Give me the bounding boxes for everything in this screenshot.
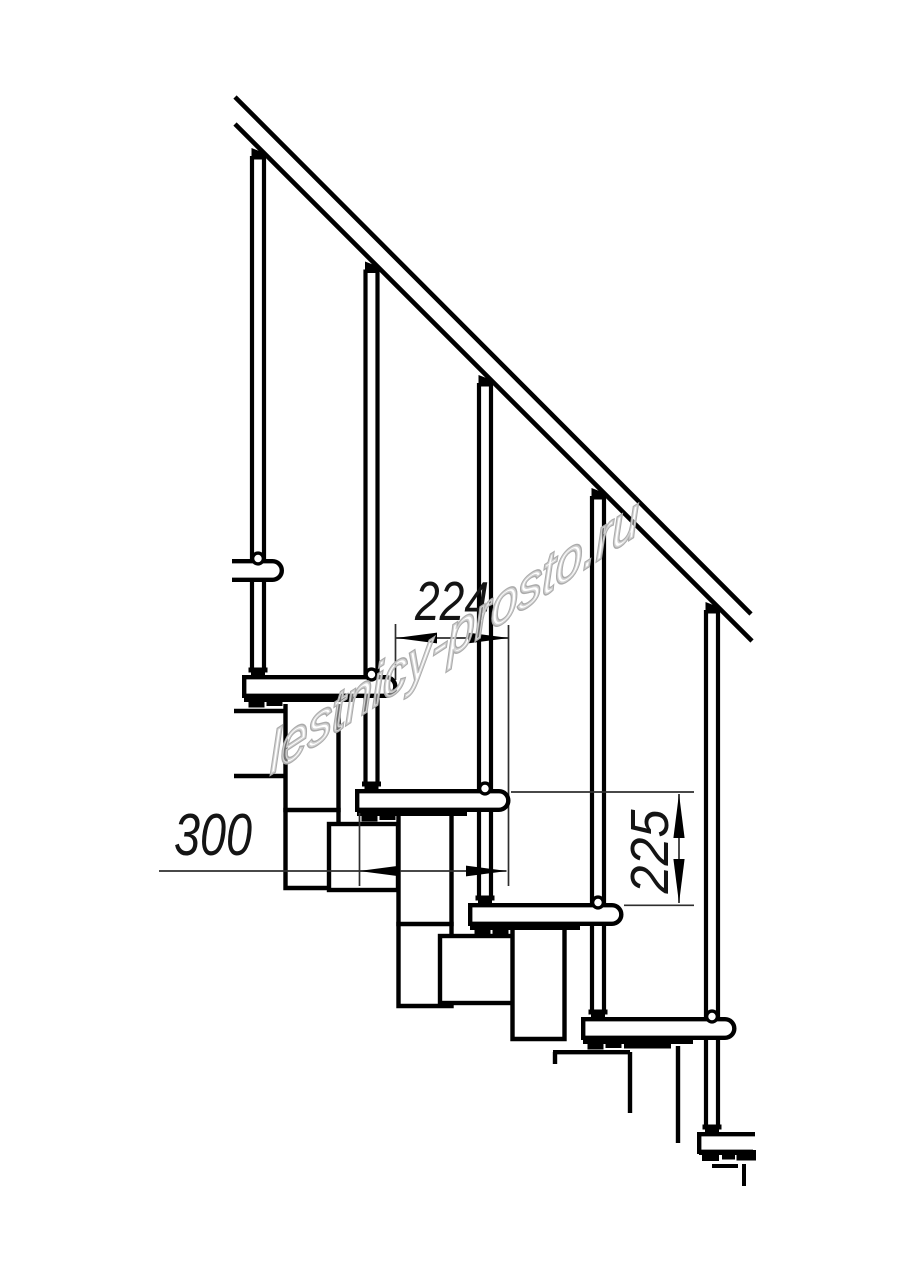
svg-text:225: 225 [620, 809, 680, 895]
svg-text:300: 300 [174, 802, 252, 868]
